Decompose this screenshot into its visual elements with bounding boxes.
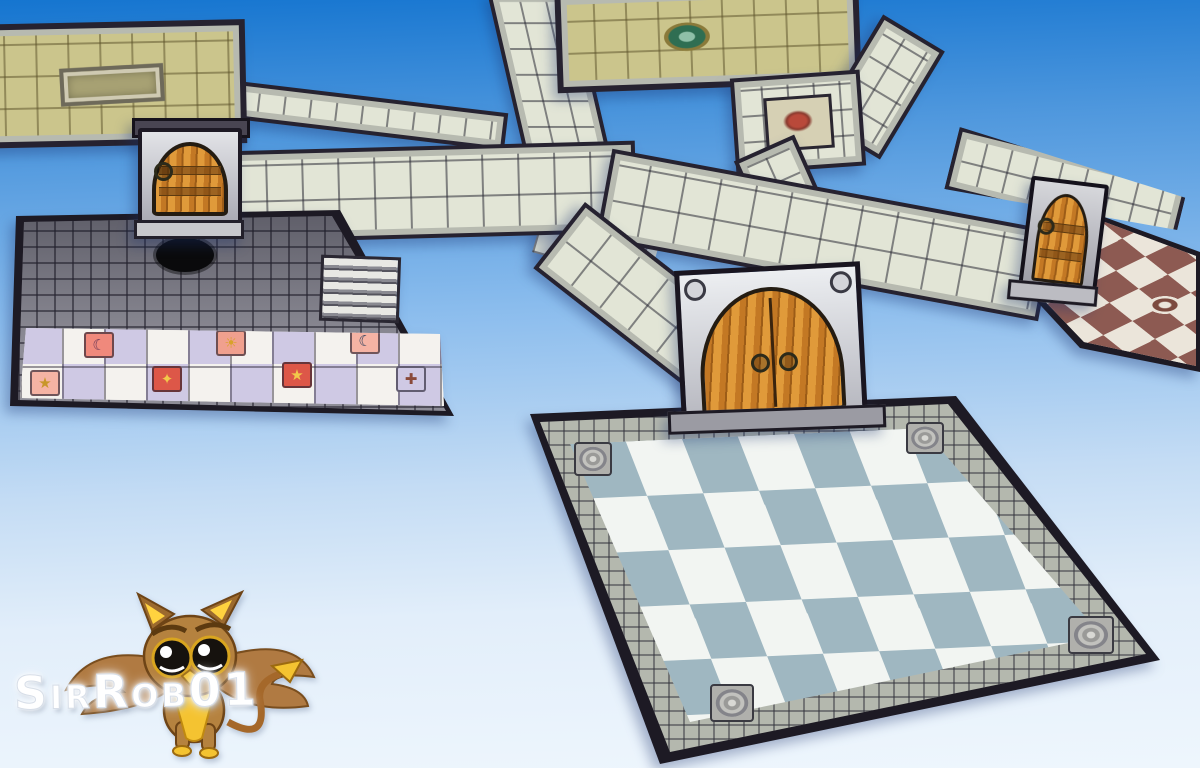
floor-pit (59, 63, 165, 107)
mosaic-floor: ★☾✦☀★☾✚ (20, 322, 444, 410)
door-threshold (134, 220, 244, 239)
great-double-door (668, 258, 883, 430)
gargoyle-carving-icon (1068, 616, 1114, 654)
watermark: SirRob01 (14, 662, 260, 720)
mosaic-symbol-cell: ★ (282, 362, 312, 388)
mosaic-symbol-cell: ☾ (84, 332, 114, 358)
mosaic-symbol-cell: ★ (30, 370, 60, 396)
door-brace (1039, 248, 1082, 262)
stone-door-frame (674, 261, 868, 427)
pit-hole (156, 238, 214, 272)
wooden-door-west (136, 118, 240, 236)
photo-dungeon-tiles-scene: ★☾✦☀★☾✚ (0, 0, 1200, 768)
arched-door-east (1013, 173, 1116, 309)
mosaic-symbol-cell: ☀ (216, 330, 246, 356)
mosaic-symbol-cell: ✦ (152, 366, 182, 392)
gargoyle-carving-icon (574, 442, 612, 476)
door-ring-handle-icon (154, 162, 173, 181)
stone-door-frame (138, 128, 242, 228)
blue-checker-hall (518, 392, 1190, 768)
door-seam (769, 298, 778, 407)
blood-rune-emblem (775, 104, 821, 139)
wooden-door-leaf (1031, 191, 1094, 287)
serpent-circle-emblem (657, 18, 716, 56)
corridor-northwest (226, 80, 509, 151)
mosaic-symbol-cell: ✚ (396, 366, 426, 392)
gargoyle-carving-icon (906, 422, 944, 454)
frame-boss-icon (684, 278, 707, 301)
frame-boss-icon (829, 271, 852, 294)
dark-cobble-room: ★☾✦☀★☾✚ (0, 208, 460, 424)
round-floor-emblem (1144, 294, 1186, 316)
gargoyle-carving-icon (710, 684, 754, 722)
stone-stairs (319, 255, 401, 324)
door-brace (159, 187, 222, 196)
double-door-leaves (696, 283, 846, 416)
